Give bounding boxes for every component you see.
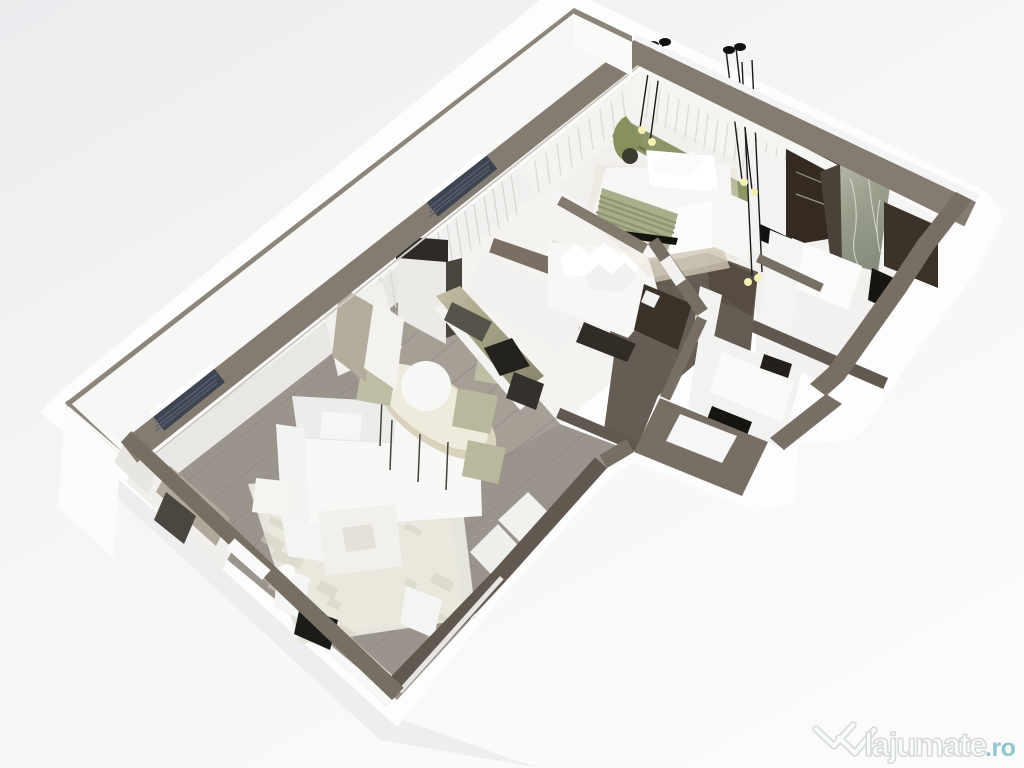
svg-text:lajumate: lajumate bbox=[864, 726, 987, 763]
svg-text:.ro: .ro bbox=[985, 734, 1016, 762]
